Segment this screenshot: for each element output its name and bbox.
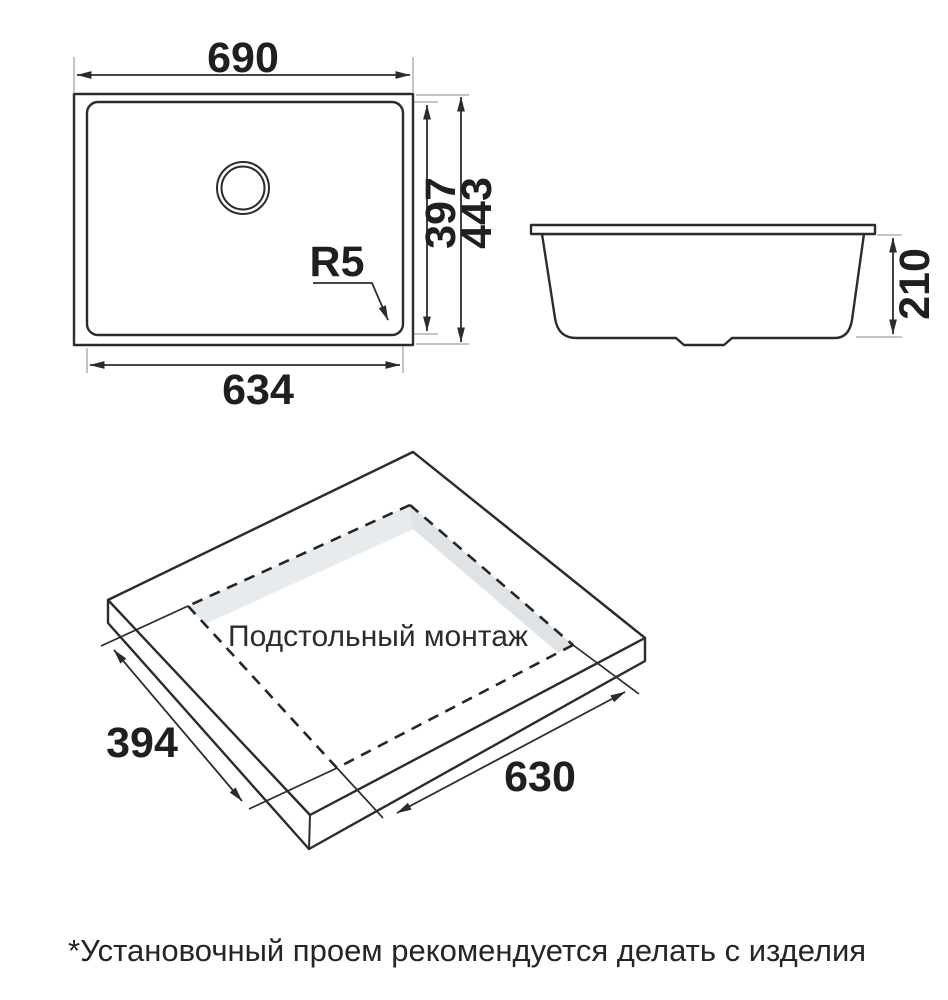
sink-dimension-drawing: 690 397 443 634 R5 210 [0, 0, 948, 1000]
sink-profile-rim [531, 225, 875, 234]
dim-text-394: 394 [106, 719, 178, 767]
dim-text-690: 690 [207, 34, 279, 82]
dim-text-634: 634 [222, 366, 294, 414]
undermount-view: 394 630 Подстольный монтаж [101, 452, 645, 849]
side-view: 210 [531, 225, 939, 345]
footnote-text: *Установочный проем рекомендуется делать… [68, 933, 866, 968]
radius-text-r5: R5 [310, 238, 365, 286]
top-view: 690 397 443 634 R5 [74, 34, 501, 414]
dim-text-630: 630 [504, 753, 576, 801]
sink-profile-body [542, 234, 864, 345]
dim-text-210: 210 [891, 248, 939, 320]
sink-basin-outline [87, 102, 403, 335]
dim-text-443: 443 [453, 177, 501, 249]
slab-corner-edge [309, 815, 310, 849]
undermount-label: Подстольный монтаж [228, 620, 528, 653]
drawing-canvas: 690 397 443 634 R5 210 [0, 0, 948, 1000]
